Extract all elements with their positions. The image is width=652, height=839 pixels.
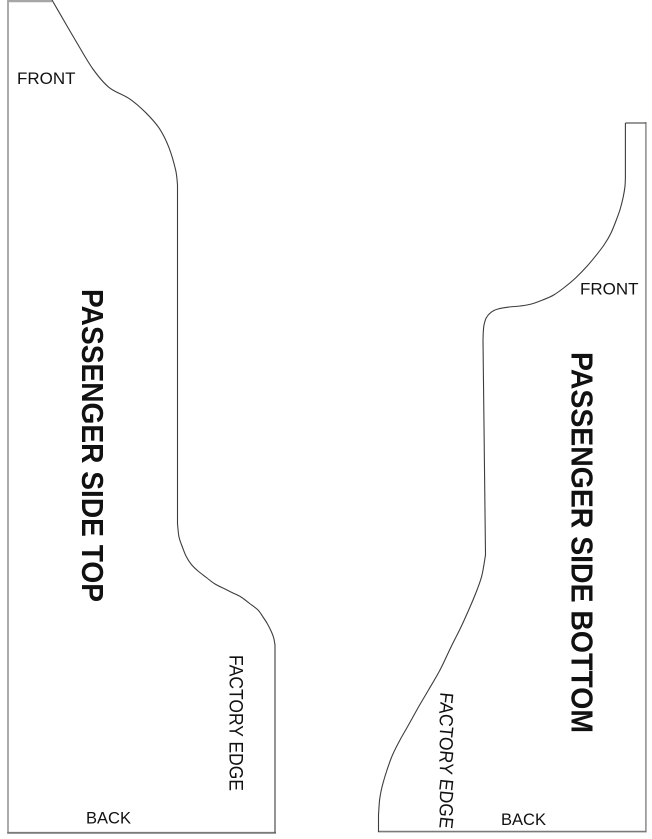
- svg-text:FRONT: FRONT: [580, 280, 639, 299]
- svg-text:FRONT: FRONT: [17, 69, 76, 88]
- svg-text:BACK: BACK: [86, 809, 132, 828]
- svg-text:BACK: BACK: [501, 810, 547, 829]
- svg-text:PASSENGER SIDE BOTTOM: PASSENGER SIDE BOTTOM: [564, 352, 598, 733]
- svg-text:PASSENGER SIDE TOP: PASSENGER SIDE TOP: [75, 289, 109, 602]
- svg-text:FACTORY EDGE: FACTORY EDGE: [434, 691, 456, 829]
- svg-text:FACTORY EDGE: FACTORY EDGE: [224, 655, 245, 791]
